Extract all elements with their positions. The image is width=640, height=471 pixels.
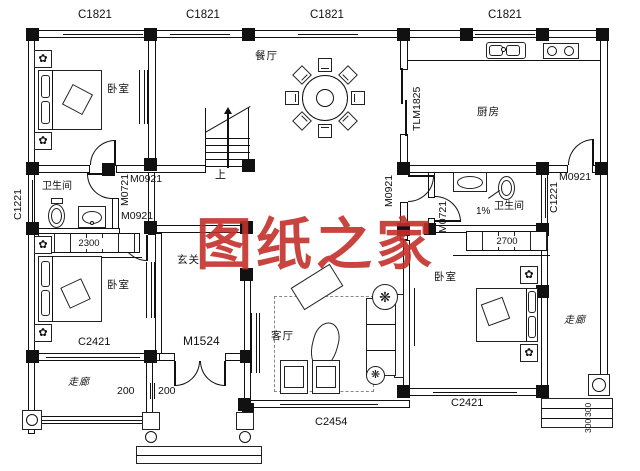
side-steps — [541, 398, 613, 428]
window-c2421-bottom-left — [46, 353, 140, 361]
nightstand-flower-icon: ✿ — [520, 266, 538, 284]
pillow — [528, 291, 536, 313]
closet-right-dimension: 2700 — [493, 236, 520, 247]
room-label-bedroom: 卧室 — [107, 280, 130, 292]
dimension-300: 300 — [584, 419, 593, 433]
floor-plan: ✿ ✿ 2300 2700 ✿ ✿ — [0, 0, 640, 471]
decorative-column-cap — [26, 414, 38, 426]
kitchen-counter-edge — [408, 60, 600, 61]
window-c1821-1 — [63, 30, 143, 38]
armchair-cushion — [316, 366, 336, 388]
step-line — [541, 418, 613, 419]
wardrobe — [146, 262, 155, 318]
dimension-line — [453, 255, 550, 256]
door-label-m0721: M0721 — [120, 174, 132, 206]
window-label-c1221: C1221 — [549, 182, 561, 213]
window-label-c1821: C1821 — [488, 9, 522, 22]
wall-segment — [116, 165, 206, 173]
column — [397, 28, 410, 41]
wall-segment — [400, 134, 408, 165]
window-c1821-2 — [170, 30, 230, 38]
column — [26, 28, 39, 41]
stair-direction-line — [227, 114, 229, 168]
room-label-dining: 餐厅 — [255, 51, 278, 63]
window-c1821-3 — [298, 30, 358, 38]
window-c1221-right — [541, 178, 548, 218]
dining-chair — [318, 124, 332, 138]
column — [397, 385, 410, 398]
stair-edge — [205, 108, 206, 172]
door-leaf — [224, 361, 226, 386]
room-label-corridor: 走廊 — [564, 315, 586, 326]
window-c1821-4 — [475, 30, 535, 38]
column — [26, 350, 39, 363]
room-label-bedroom: 卧室 — [434, 272, 457, 284]
nightstand-flower-icon: ✿ — [34, 50, 52, 68]
plant-icon: ❋ — [372, 284, 398, 310]
window-label-c1821: C1821 — [186, 9, 220, 22]
room-label-living: 客厅 — [271, 331, 294, 343]
step-line — [136, 455, 262, 456]
door-arc — [408, 176, 434, 202]
sofa-cushion-line — [366, 324, 396, 325]
wardrobe — [139, 70, 148, 124]
door-leaf — [408, 175, 434, 177]
column — [397, 162, 410, 175]
wall-segment — [600, 30, 608, 392]
door-arc — [175, 361, 200, 386]
wall-segment — [244, 271, 251, 361]
basin-faucet — [90, 221, 94, 225]
door-leaf — [146, 235, 148, 261]
pillow — [41, 261, 50, 287]
dimension-300: 300 — [584, 403, 593, 417]
dimension-tick — [146, 383, 147, 399]
toilet-bowl — [501, 180, 512, 196]
wall-segment — [112, 198, 119, 232]
stairs-up-label: 上 — [215, 169, 226, 181]
nightstand-flower-icon: ✿ — [34, 236, 52, 254]
room-label-bedroom: 卧室 — [107, 84, 130, 96]
dimension-200-left: 200 — [117, 386, 135, 398]
door-label-m0921: M0921 — [559, 172, 591, 184]
door-leaf — [592, 139, 594, 165]
toilet-bowl — [51, 208, 62, 224]
window-c1221-left — [28, 180, 35, 222]
living-bedroom-panel — [403, 288, 415, 346]
column — [595, 162, 608, 175]
nightstand-flower-icon: ✿ — [520, 344, 538, 362]
stove-burner — [547, 46, 557, 56]
window-label-c1221: C1221 — [13, 189, 25, 220]
door-label-m0921: M0921 — [130, 174, 162, 186]
plant-icon: ❋ — [366, 366, 385, 385]
sink-faucet — [501, 47, 506, 52]
window-label-c1821: C1821 — [310, 9, 344, 22]
porch-column-base — [239, 431, 251, 443]
window-label-c2421: C2421 — [451, 397, 483, 409]
window-c2454 — [280, 400, 378, 408]
stove-burner — [564, 46, 574, 56]
room-label-bathroom: 卫生间 — [42, 181, 72, 192]
wall-segment — [400, 38, 408, 70]
door-label-m0721: M0721 — [438, 201, 450, 233]
decorative-column-cap — [592, 378, 606, 392]
slope-label: 1% — [476, 206, 490, 217]
window-label-c2454: C2454 — [315, 416, 347, 428]
wall-segment — [148, 38, 156, 165]
column — [144, 28, 157, 41]
column — [536, 28, 549, 41]
armchair-cushion — [284, 366, 304, 388]
bed-headboard — [526, 288, 527, 342]
closet-left-dimension: 2300 — [75, 238, 102, 249]
wall-segment — [541, 233, 548, 396]
dining-chair — [351, 91, 365, 105]
step-line — [541, 408, 613, 409]
door-leaf — [174, 361, 176, 386]
porch-column — [236, 412, 254, 430]
room-label-bathroom: 卫生间 — [494, 201, 524, 212]
dimension-tick — [150, 383, 151, 399]
dining-chair — [318, 58, 332, 72]
porch-column-base — [145, 431, 157, 443]
column — [536, 162, 549, 175]
door-leaf — [87, 173, 112, 175]
door-arc — [90, 140, 115, 165]
sofa-cushion-line — [366, 350, 396, 351]
door-arc — [200, 361, 225, 386]
window-label-c2421: C2421 — [78, 336, 110, 348]
door-label-m0921: M0921 — [121, 211, 153, 223]
column — [26, 162, 39, 175]
nightstand-flower-icon: ✿ — [34, 324, 52, 342]
door-arc — [87, 174, 112, 199]
pillow — [528, 316, 536, 338]
column — [460, 28, 473, 41]
closet-left: 2300 — [38, 233, 140, 253]
stair-direction-arrow — [224, 107, 232, 114]
sliding-door-leaf — [405, 100, 407, 136]
column — [596, 28, 609, 41]
column — [536, 385, 549, 398]
wash-basin — [457, 176, 483, 189]
watermark-text: 图纸之家 — [196, 200, 436, 281]
column — [144, 221, 157, 234]
sliding-door-leaf — [401, 68, 403, 104]
pillow — [41, 101, 50, 124]
room-label-kitchen: 厨房 — [477, 107, 500, 119]
bed-headboard — [52, 256, 53, 322]
door-label-m1524: M1524 — [183, 335, 220, 348]
column — [242, 28, 255, 41]
porch-railing — [30, 416, 146, 424]
sink-basin — [506, 45, 520, 56]
wall-segment — [155, 233, 162, 361]
column — [242, 403, 254, 412]
door-label-tlm1825: TLM1825 — [412, 87, 424, 131]
bed-headboard — [52, 70, 53, 130]
door-leaf — [114, 140, 116, 166]
dining-table-center — [316, 89, 334, 107]
dining-chair — [285, 91, 299, 105]
column — [144, 350, 157, 363]
dimension-200-right: 200 — [158, 386, 176, 398]
hall-decor-panel — [251, 313, 260, 373]
closet-right: 2700 — [466, 231, 548, 251]
window-c2421-bottom-right — [433, 388, 517, 396]
column — [144, 158, 157, 171]
porch-column — [142, 412, 160, 430]
pillow — [41, 290, 50, 316]
dimension-tick — [154, 383, 155, 399]
door-arc — [568, 139, 594, 165]
nightstand-flower-icon: ✿ — [34, 132, 52, 150]
pillow — [41, 75, 50, 98]
slope-leader-line — [488, 190, 500, 199]
sofa — [366, 298, 396, 376]
stair-edge — [248, 108, 249, 172]
room-label-corridor: 走廊 — [68, 377, 90, 388]
window-label-c1821: C1821 — [78, 9, 112, 22]
